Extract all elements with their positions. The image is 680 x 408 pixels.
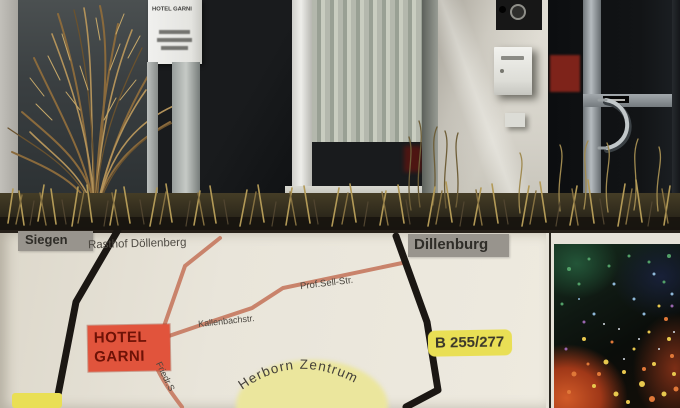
mailbox xyxy=(494,47,532,95)
mailbox-slot xyxy=(501,56,524,60)
svg-text:Herborn Zentrum: Herborn Zentrum xyxy=(235,357,360,393)
map-right-margin xyxy=(546,233,680,408)
mailbox-keyhole xyxy=(500,69,504,73)
sign-blurred-line xyxy=(157,38,192,42)
dry-grass xyxy=(0,115,680,230)
lamp-dot xyxy=(499,6,506,13)
hotel-garni-line1: HOTEL xyxy=(94,327,170,347)
road-number-label: B 255/277 xyxy=(428,329,512,356)
corner-photo-foliage xyxy=(554,244,680,408)
entrance-lamp-panel xyxy=(496,0,542,30)
yellow-label-fragment xyxy=(12,393,62,408)
label-rasthof-doellenberg: Rasthof Döllenberg xyxy=(88,237,187,252)
foliage-speckles xyxy=(554,244,680,408)
sign-blurred-line xyxy=(159,30,190,34)
hotel-sign-text: HOTEL GARNI xyxy=(152,6,187,12)
road-siegen xyxy=(57,230,118,400)
directions-map: Siegen Rasthof Döllenberg Dillenburg HOT… xyxy=(0,230,680,408)
herborn-zentrum-arc: Herborn Zentrum xyxy=(228,340,400,408)
city-label-siegen: Siegen xyxy=(18,231,93,251)
herborn-zentrum-label: Herborn Zentrum xyxy=(235,357,360,393)
city-label-dillenburg: Dillenburg xyxy=(408,234,509,257)
screenshot: HOTEL GARNI xyxy=(0,0,680,408)
road-dillenburg-b255 xyxy=(396,236,438,407)
hotel-sign: HOTEL GARNI xyxy=(148,0,202,64)
sign-blurred-line xyxy=(161,46,188,50)
map-border-line xyxy=(549,233,551,408)
hotel-entrance-photo: HOTEL GARNI xyxy=(0,0,680,230)
red-object-behind-glass xyxy=(550,55,580,92)
lamp-icon xyxy=(510,4,526,20)
